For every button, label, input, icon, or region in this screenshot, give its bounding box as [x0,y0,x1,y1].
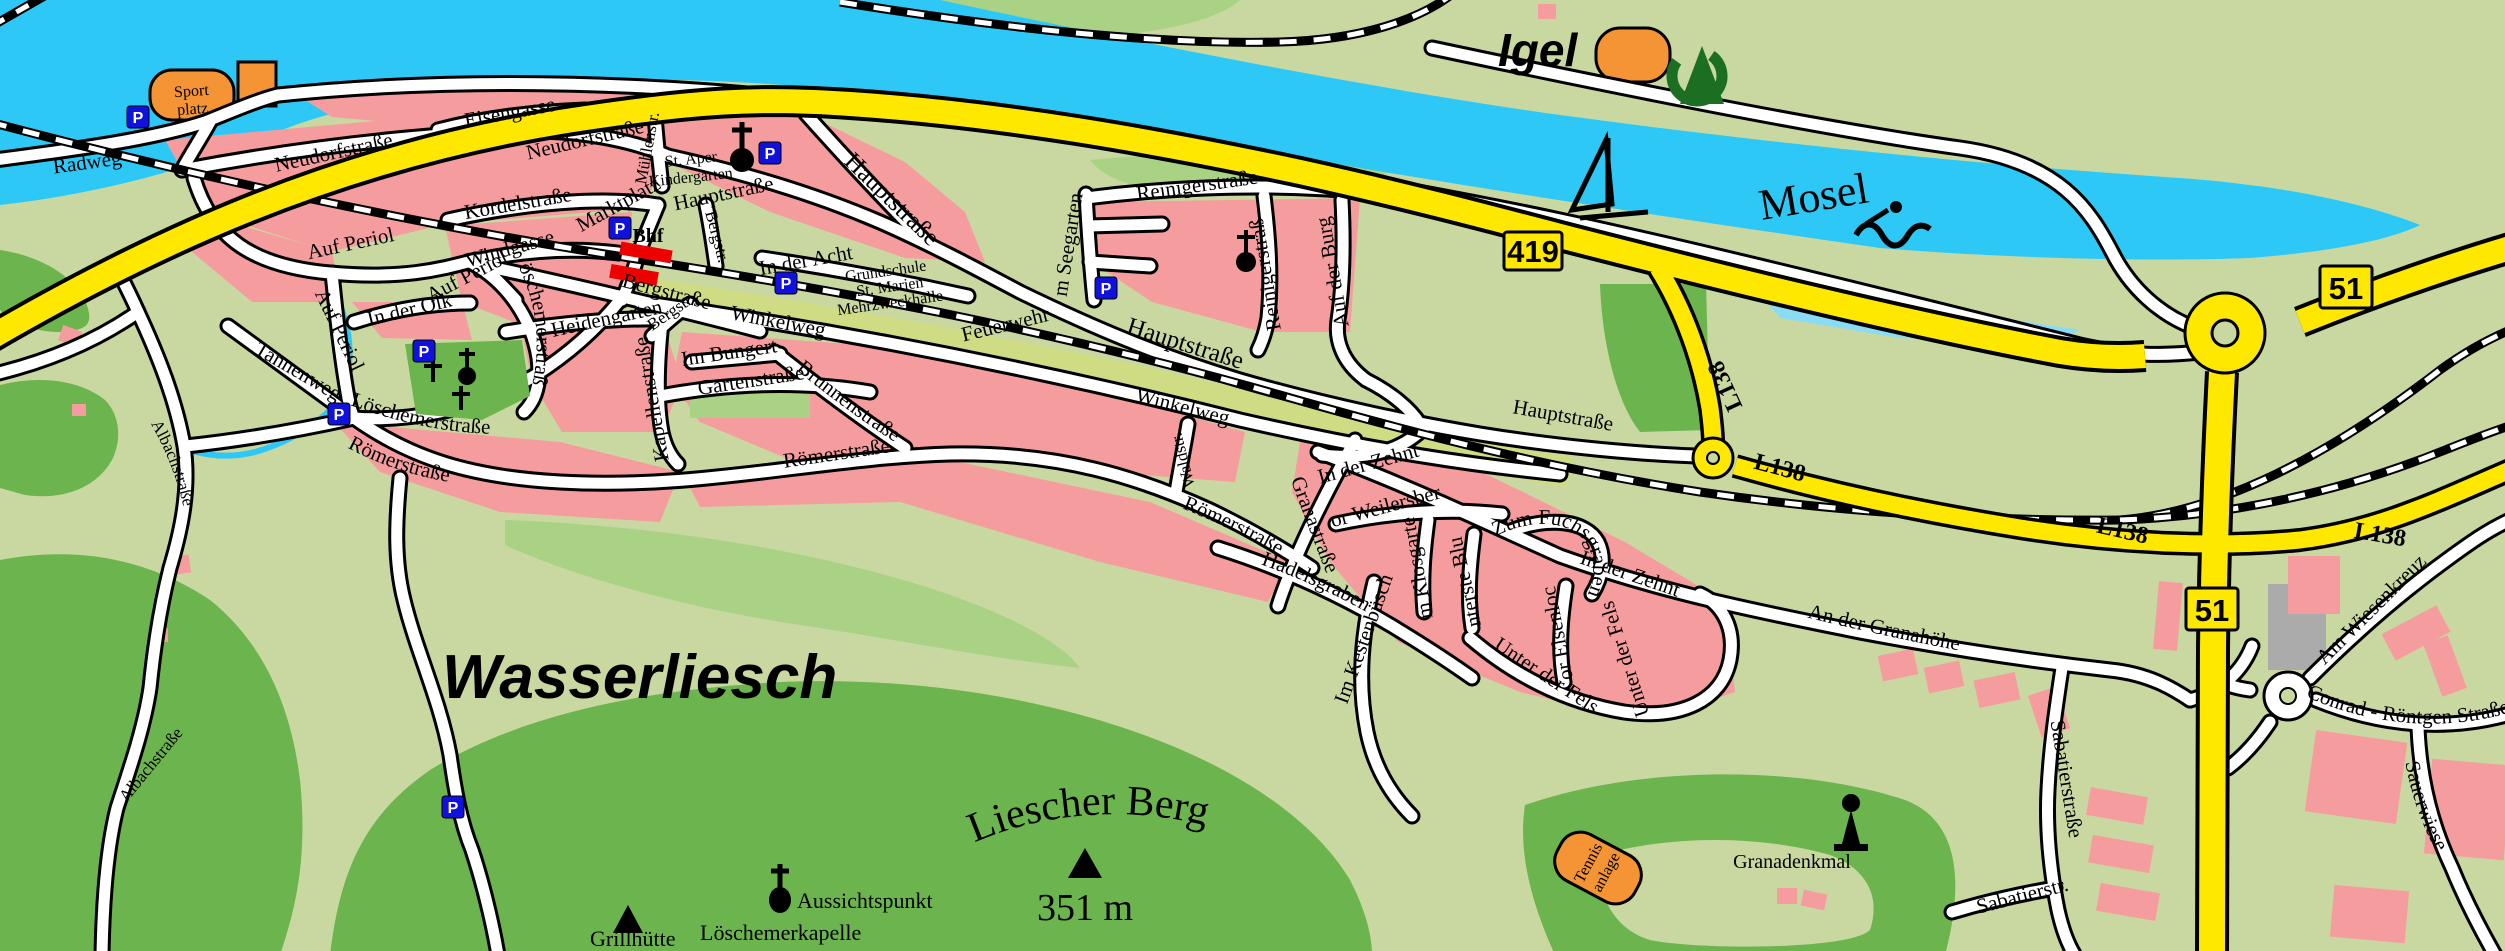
sign-b419-label: 419 [1507,234,1559,269]
parking-letter: P [781,276,792,293]
igel-sports-field [1596,28,1670,82]
parking-icon: P [413,340,435,362]
sportplatz-line1: Sport [174,82,210,101]
roundabout-island [1707,452,1719,464]
station-label: Bhf [632,225,663,247]
building [2305,730,2408,824]
building [1777,888,1797,904]
town-label: Wasserliesch [442,643,837,712]
parking-letter: P [1101,281,1112,298]
roundabout-island [2212,320,2238,346]
building [1538,4,1556,19]
parking-letter: P [419,344,430,361]
road-b51 [2212,372,2222,951]
sign-b51: 51 [2320,266,2372,308]
building [2330,885,2409,943]
sign-b51-label: 51 [2195,593,2229,628]
hut-label: Grillhütte [590,926,676,951]
parking-letter: P [334,407,345,424]
parking-letter: P [765,146,776,163]
parking-icon: P [127,106,149,128]
parking-letter: P [448,800,459,817]
parking-letter: P [615,221,626,238]
map-canvas[interactable]: Tennis anlage P P P P P P P P 419 51 51 … [0,0,2505,951]
map-viewport[interactable]: Tennis anlage P P P P P P P P 419 51 51 … [0,0,2505,951]
roundabout-island [2280,688,2296,704]
parking-icon: P [1095,277,1117,299]
sign-b51: 51 [2186,588,2238,630]
sportplatz-label: Sport platz [174,82,212,119]
elevation-label: 351 m [1037,887,1133,929]
building [72,404,86,416]
village-label: Igel [1498,24,1578,76]
monument-label: Granadenkmal [1733,851,1851,873]
parking-icon: P [328,403,350,425]
parking-icon: P [759,142,781,164]
chapel-label: Löschemerkapelle [700,920,861,945]
viewpoint-label: Aussichtspunkt [797,888,933,913]
parking-letter: P [133,110,144,127]
sign-b419: 419 [1504,232,1562,270]
building [2288,556,2340,614]
sportplatz-line2: platz [177,100,209,119]
parking-icon: P [442,796,464,818]
sign-b51-label: 51 [2329,271,2363,306]
